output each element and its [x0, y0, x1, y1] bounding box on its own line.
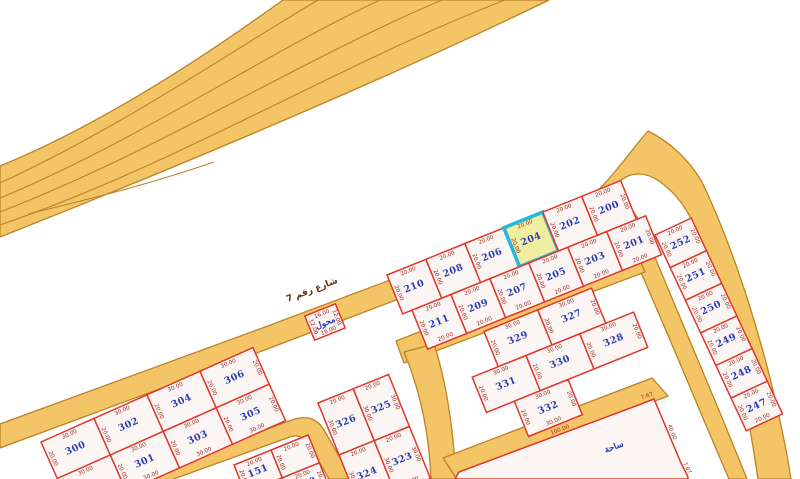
cadastral-map: 21020.0020.0020820.0020.0020620.0020.002… [0, 0, 800, 479]
road-highway [0, 0, 549, 237]
map-canvas: 21020.0020.0020820.0020.0020620.0020.002… [0, 0, 800, 479]
street-name-label: شارع رقم 7 [285, 276, 339, 305]
